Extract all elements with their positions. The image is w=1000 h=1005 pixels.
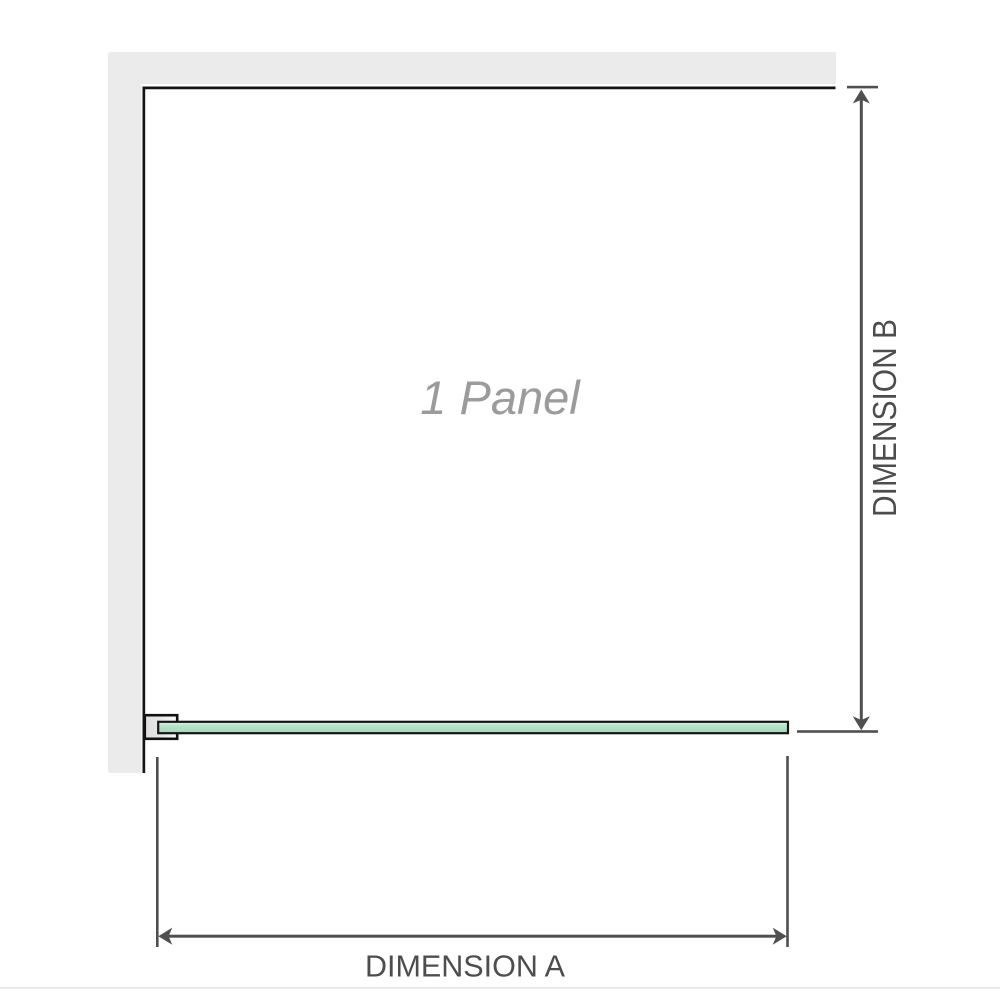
svg-text:DIMENSION A: DIMENSION A [365,949,565,984]
svg-text:DIMENSION B: DIMENSION B [866,319,903,517]
svg-text:1 Panel: 1 Panel [420,371,581,424]
